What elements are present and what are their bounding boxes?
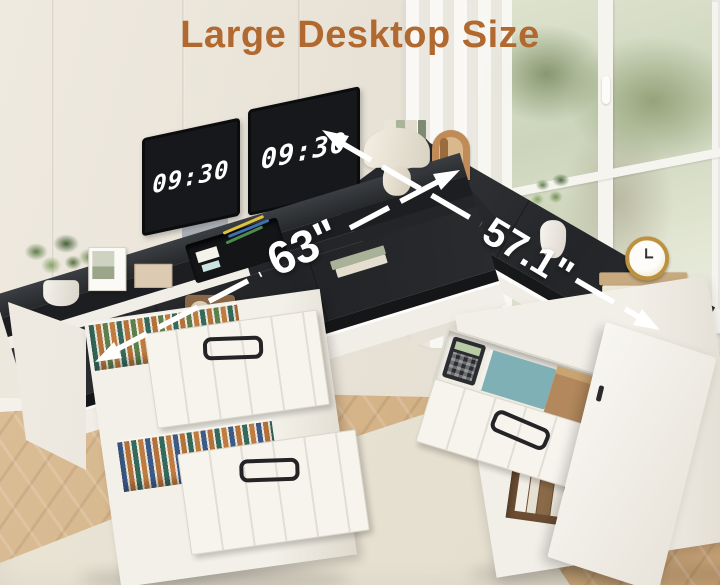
- calculator-keys: [447, 352, 479, 382]
- framed-photo: [92, 251, 114, 279]
- left-monitor-clock: 09:30: [152, 155, 229, 199]
- window-handle: [602, 76, 610, 104]
- door-handle: [596, 385, 605, 402]
- drawer-handle: [203, 335, 264, 360]
- lamp-base: [383, 166, 411, 196]
- table-lamp: [364, 128, 430, 198]
- drawer-handle: [239, 458, 300, 483]
- clock-hand: [645, 256, 653, 258]
- drawer-handle: [488, 408, 552, 453]
- left-monitor: 09:30: [142, 118, 240, 237]
- wooden-box: [134, 264, 172, 288]
- vase-with-plant: [527, 168, 579, 260]
- plant-foliage: [527, 168, 579, 216]
- sticky-notes: [195, 246, 219, 263]
- page-title: Large Desktop Size: [0, 14, 720, 57]
- alarm-clock: [625, 236, 669, 280]
- picture-frame: [88, 247, 126, 291]
- plant-pot: [43, 280, 79, 306]
- white-vase: [540, 220, 566, 258]
- right-monitor-clock: 09:30: [261, 126, 347, 175]
- lamp-shade: [364, 128, 430, 168]
- file-drawer-pedestal: [84, 289, 357, 585]
- product-image: 09:30 09:30: [0, 0, 720, 585]
